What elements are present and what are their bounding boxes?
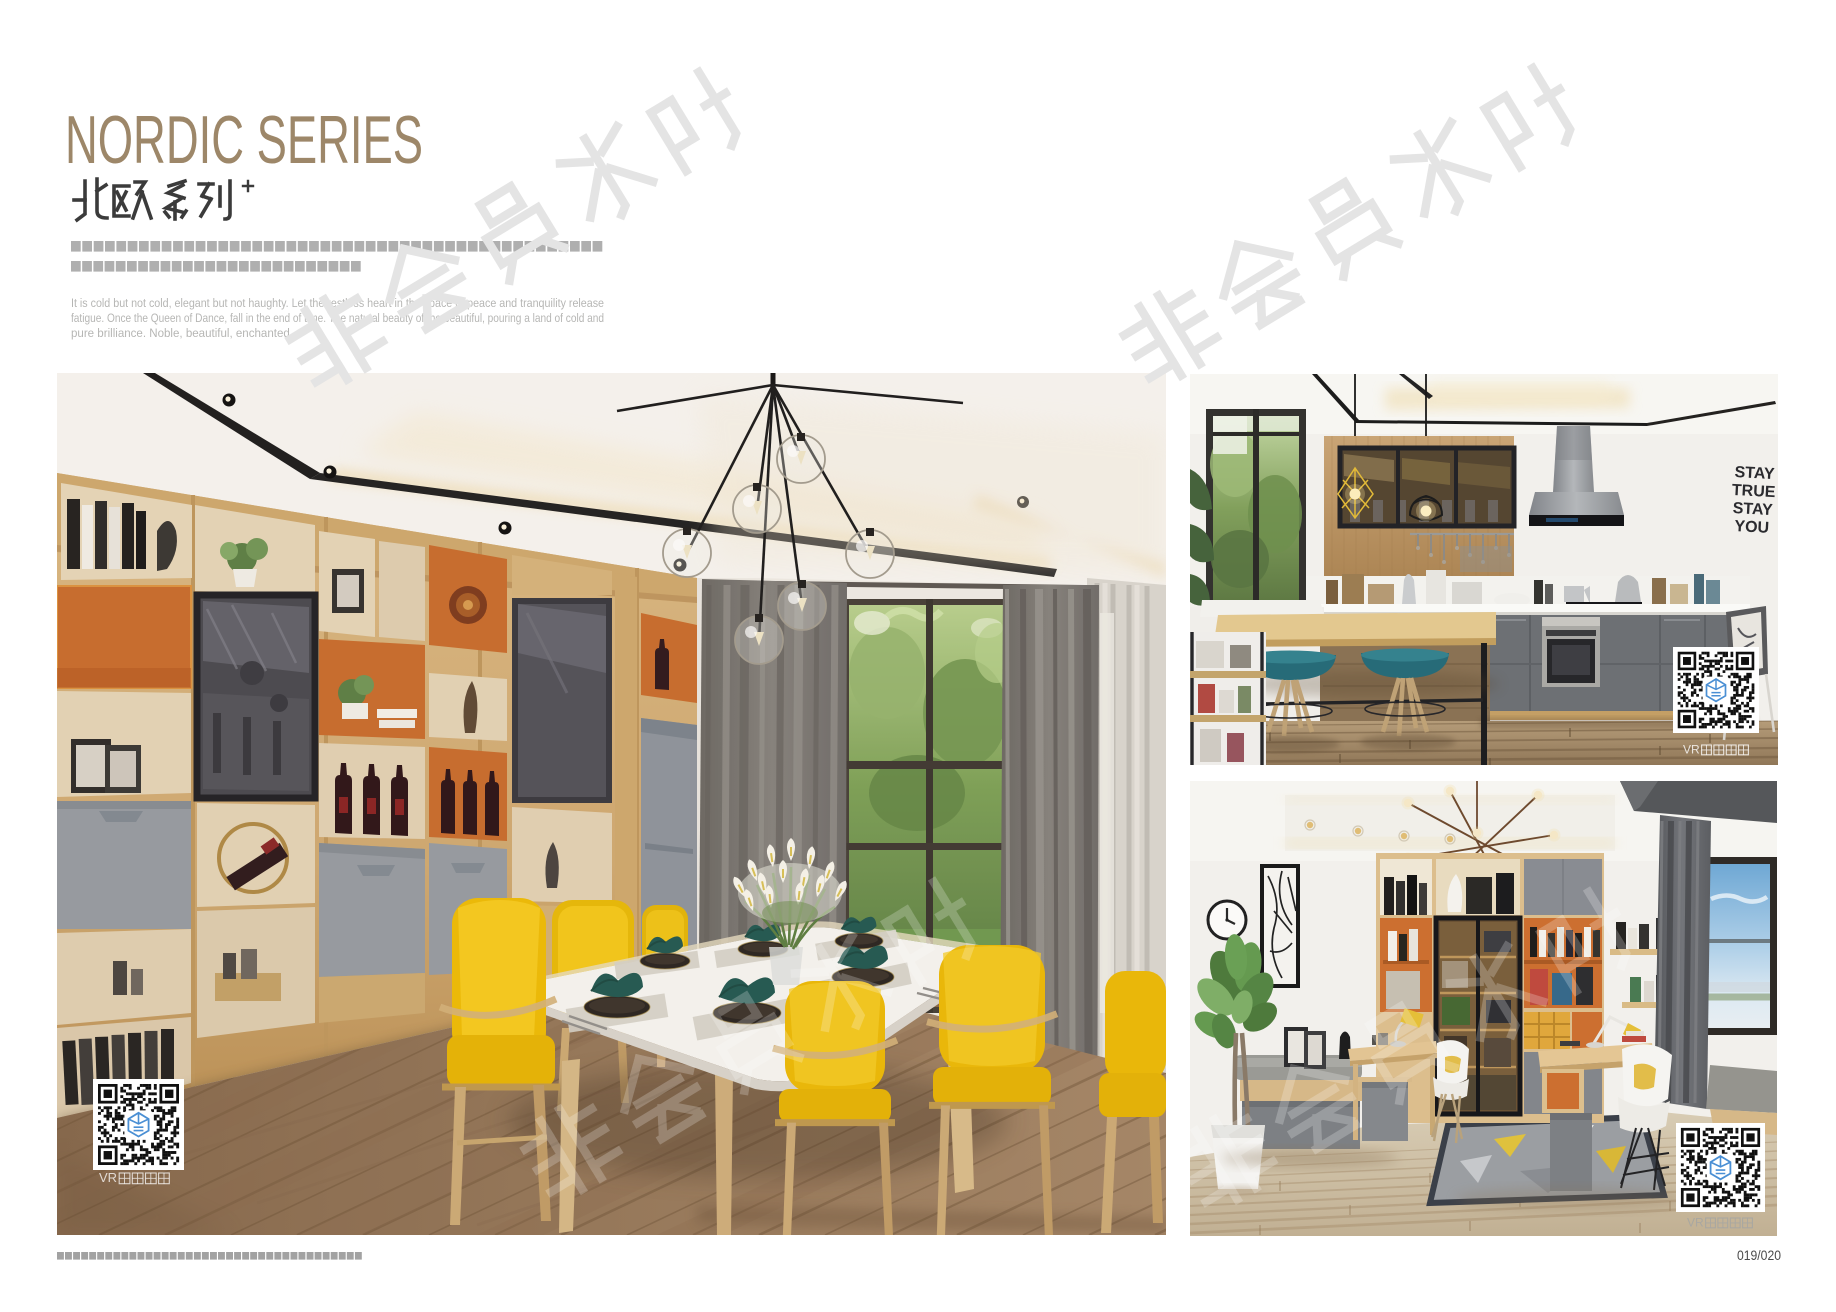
svg-text:pure brilliance. Noble, beauti: pure brilliance. Noble, beautiful, encha… (71, 326, 293, 340)
svg-text:STAY: STAY (1734, 464, 1775, 483)
svg-text:VR: VR (1683, 742, 1700, 756)
svg-text:NORDIC SERIES: NORDIC SERIES (65, 102, 423, 178)
svg-text:019/020: 019/020 (1737, 1248, 1781, 1263)
svg-text:STAY: STAY (1732, 500, 1773, 519)
svg-text:TRUE: TRUE (1731, 482, 1776, 501)
svg-text:VR: VR (1687, 1215, 1704, 1229)
svg-text:YOU: YOU (1734, 518, 1770, 537)
svg-text:VR: VR (99, 1170, 117, 1185)
